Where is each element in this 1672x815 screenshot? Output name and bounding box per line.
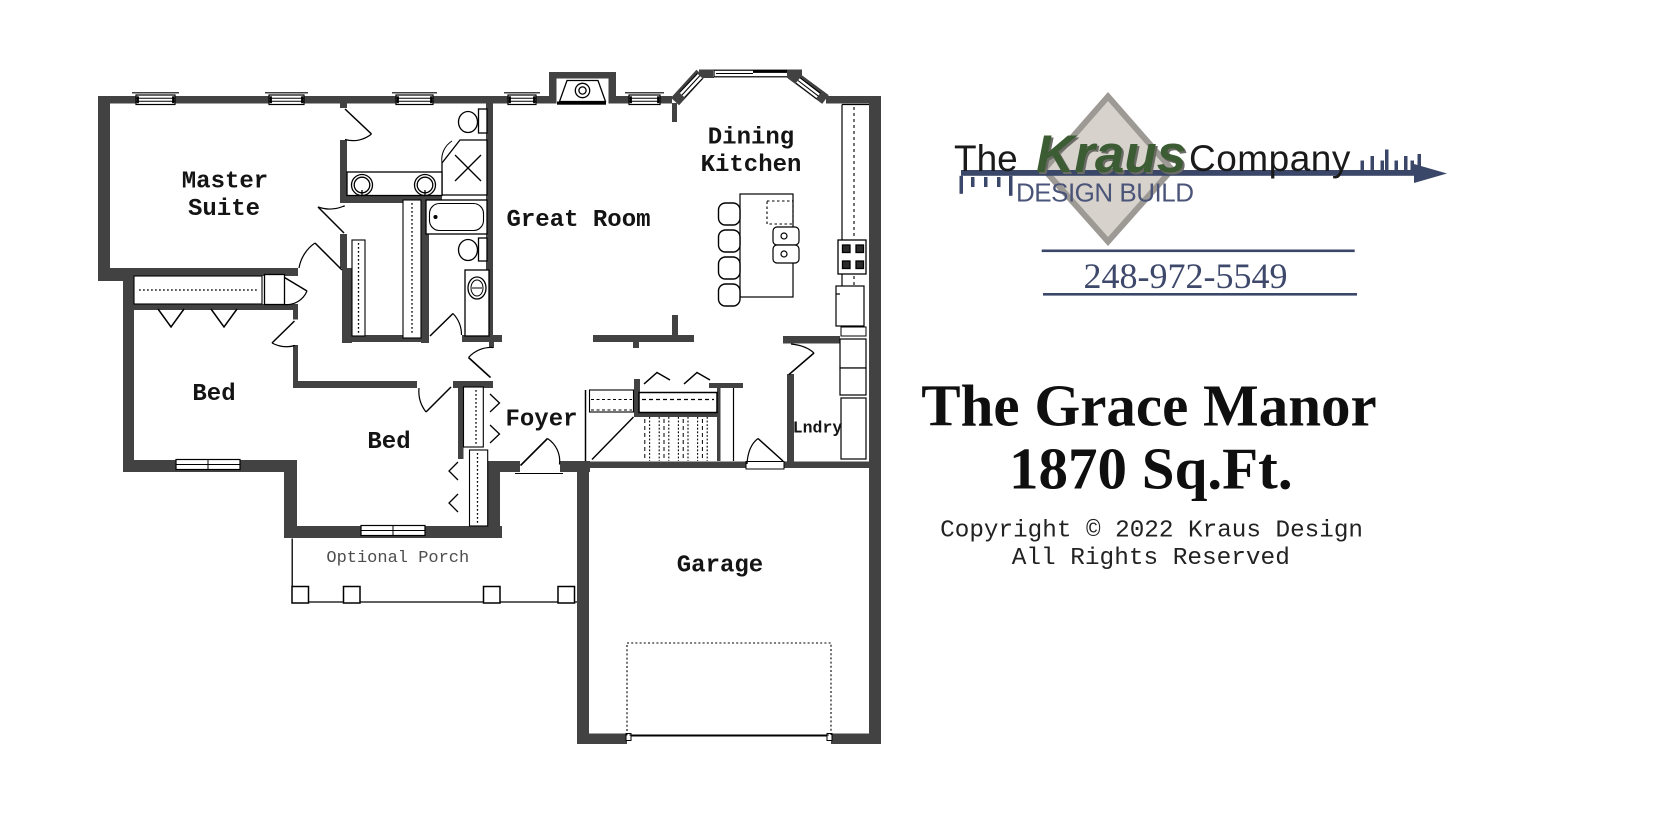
svg-text:Bed: Bed (192, 381, 235, 408)
svg-text:1870 Sq.Ft.: 1870 Sq.Ft. (1009, 436, 1293, 502)
svg-text:Master: Master (182, 169, 268, 196)
svg-text:Foyer: Foyer (505, 407, 577, 434)
svg-text:Bed: Bed (367, 429, 410, 456)
svg-text:Optional Porch: Optional Porch (326, 549, 469, 568)
svg-text:Great Room: Great Room (506, 207, 650, 234)
svg-text:Suite: Suite (188, 196, 260, 223)
svg-text:The Grace Manor: The Grace Manor (921, 373, 1377, 439)
svg-text:DESIGN BUILD: DESIGN BUILD (1016, 178, 1194, 208)
svg-text:248-972-5549: 248-972-5549 (1084, 256, 1288, 296)
svg-text:Kraus: Kraus (1036, 125, 1186, 184)
svg-text:Copyright © 2022 Kraus Design: Copyright © 2022 Kraus Design (940, 518, 1363, 545)
svg-text:Lndry: Lndry (793, 419, 843, 438)
svg-text:Dining: Dining (708, 125, 794, 152)
svg-text:The: The (954, 138, 1018, 179)
svg-text:All Rights Reserved: All Rights Reserved (1012, 545, 1290, 572)
svg-text:Kitchen: Kitchen (701, 152, 802, 179)
svg-text:Company: Company (1189, 138, 1351, 179)
svg-text:Garage: Garage (677, 553, 763, 580)
